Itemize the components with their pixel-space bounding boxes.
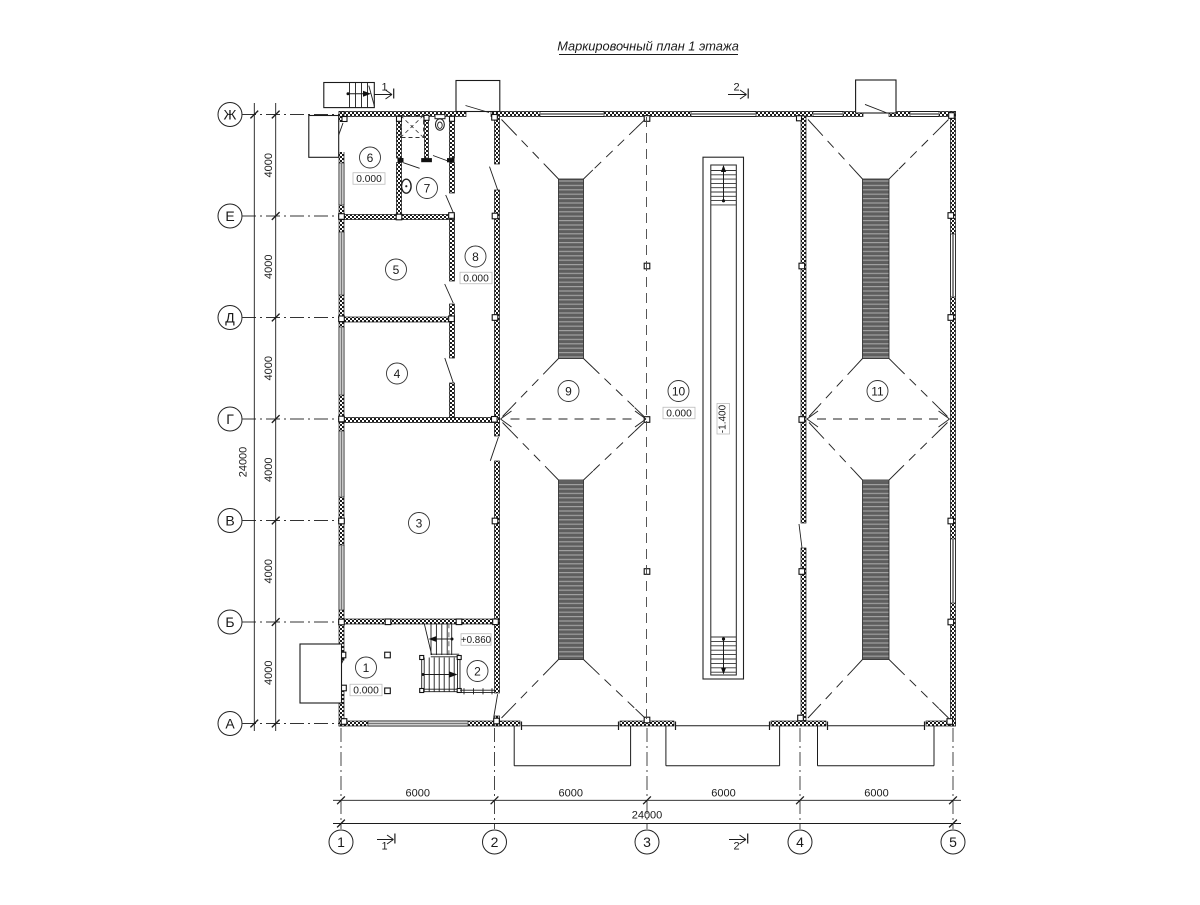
- svg-text:4000: 4000: [263, 458, 275, 482]
- svg-text:5: 5: [949, 834, 957, 850]
- svg-text:2: 2: [733, 841, 739, 853]
- svg-text:4000: 4000: [263, 255, 275, 279]
- svg-text:5: 5: [393, 263, 400, 277]
- svg-text:Г: Г: [226, 411, 234, 427]
- svg-text:3: 3: [643, 834, 651, 850]
- svg-text:1: 1: [337, 834, 345, 850]
- svg-text:4: 4: [796, 834, 804, 850]
- svg-text:4000: 4000: [263, 559, 275, 583]
- svg-text:2: 2: [474, 664, 481, 678]
- svg-text:6000: 6000: [559, 788, 583, 800]
- svg-text:+0.860: +0.860: [461, 635, 492, 646]
- svg-text:В: В: [225, 513, 234, 529]
- svg-text:0.000: 0.000: [353, 685, 379, 696]
- svg-text:0.000: 0.000: [356, 174, 382, 185]
- svg-text:6000: 6000: [864, 788, 888, 800]
- svg-text:1: 1: [381, 82, 387, 94]
- svg-text:24000: 24000: [632, 810, 663, 822]
- svg-text:9: 9: [565, 384, 572, 398]
- svg-text:Д: Д: [225, 310, 235, 326]
- svg-text:10: 10: [672, 384, 686, 398]
- svg-text:4000: 4000: [263, 356, 275, 380]
- svg-text:8: 8: [472, 250, 479, 264]
- svg-text:2: 2: [491, 834, 499, 850]
- svg-text:Маркировочный план 1 этажа: Маркировочный план 1 этажа: [557, 39, 739, 54]
- svg-text:4: 4: [394, 367, 401, 381]
- svg-text:Б: Б: [225, 614, 234, 630]
- svg-text:А: А: [225, 716, 235, 732]
- svg-text:6000: 6000: [711, 788, 735, 800]
- svg-text:11: 11: [871, 384, 884, 398]
- svg-text:4000: 4000: [263, 661, 275, 685]
- svg-text:6000: 6000: [406, 788, 430, 800]
- svg-text:4000: 4000: [263, 153, 275, 177]
- svg-text:Е: Е: [225, 208, 234, 224]
- svg-text:0.000: 0.000: [666, 408, 692, 419]
- svg-text:-1.400: -1.400: [718, 404, 729, 433]
- svg-text:Ж: Ж: [224, 107, 237, 123]
- svg-text:1: 1: [363, 661, 370, 675]
- svg-text:6: 6: [367, 151, 374, 165]
- svg-text:1: 1: [381, 841, 387, 853]
- svg-text:0.000: 0.000: [463, 273, 489, 284]
- svg-text:7: 7: [424, 181, 431, 195]
- svg-text:24000: 24000: [238, 447, 250, 478]
- svg-text:3: 3: [416, 516, 423, 530]
- svg-text:2: 2: [733, 82, 739, 94]
